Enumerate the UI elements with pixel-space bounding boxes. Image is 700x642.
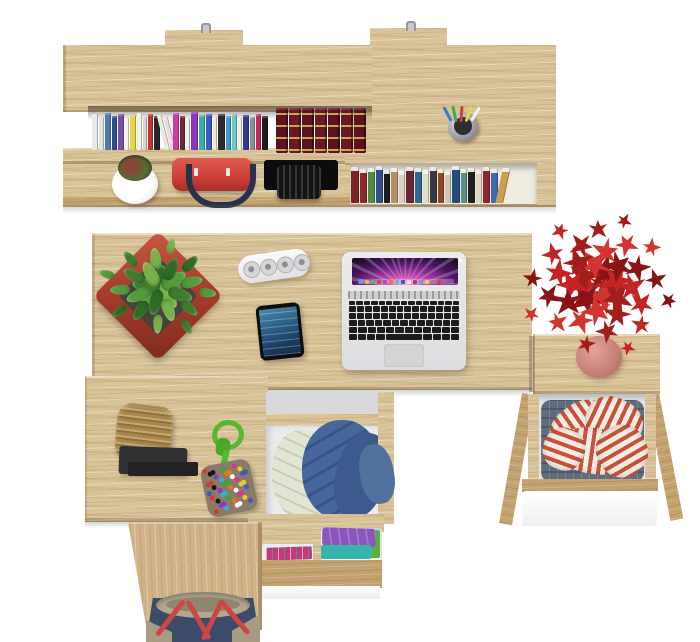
keyboard-key	[367, 334, 375, 340]
keyboard-key	[404, 306, 411, 312]
book-spine	[173, 113, 179, 150]
dark-tray-base	[128, 462, 198, 476]
shelf-drop-shadow	[63, 205, 556, 214]
drawer-divider	[313, 528, 321, 564]
pink-pencil-case	[266, 546, 312, 561]
classic-book-spine	[315, 108, 327, 153]
keyboard-key	[381, 306, 388, 312]
book-spine	[191, 112, 198, 150]
drawer-front-edge	[522, 479, 658, 492]
keyboard-key	[358, 334, 366, 340]
keyboard-key	[386, 301, 392, 305]
keyboard-key	[349, 301, 355, 305]
keyboard-key	[451, 334, 459, 340]
keyboard-key	[389, 306, 396, 312]
book-row-lower	[351, 165, 536, 203]
keyboard-key	[452, 306, 459, 312]
book-spine	[143, 117, 147, 150]
keyboard-row	[349, 334, 459, 340]
maple-leaf	[547, 312, 569, 334]
keyboard-key	[445, 301, 451, 305]
keyboard-key	[400, 320, 408, 326]
dock-icon	[413, 280, 417, 284]
book-spine	[92, 114, 98, 150]
laptop-keyboard	[349, 301, 459, 341]
keyboard-key	[444, 313, 451, 319]
camera-bag	[277, 165, 321, 199]
keyboard-key	[365, 313, 372, 319]
keyboard-key	[451, 327, 459, 333]
book-spine	[213, 117, 217, 150]
book-spine	[483, 167, 490, 203]
keyboard-row	[349, 320, 459, 326]
book-spine	[391, 168, 398, 203]
laptop-trackpad	[384, 344, 424, 367]
keyboard-key	[432, 327, 440, 333]
maple-leaf	[643, 267, 669, 293]
keyboard-key	[349, 327, 357, 333]
keyboard-key	[408, 301, 414, 305]
book-spine	[99, 117, 104, 150]
keyboard-key	[417, 320, 425, 326]
keyboard-key	[401, 301, 407, 305]
teal-cloth	[320, 545, 372, 559]
shelf-side-wall	[537, 163, 556, 205]
keyboard-key	[349, 320, 357, 326]
succulent-leaf	[110, 284, 130, 295]
pom-dot	[244, 484, 250, 490]
keyboard-key	[358, 327, 366, 333]
keyboard-key	[356, 301, 362, 305]
book-spine	[406, 167, 414, 203]
book-spine	[148, 114, 153, 150]
classic-book-spine	[302, 108, 314, 153]
keyboard-key	[386, 334, 423, 340]
keyboard-key	[414, 327, 422, 333]
dock-icon	[401, 280, 405, 284]
maple-leaf	[535, 282, 562, 309]
socket-icon	[259, 258, 278, 277]
keyboard-key	[453, 301, 459, 305]
book-spine	[430, 167, 437, 203]
keyboard-key	[436, 313, 443, 319]
keyboard-key	[397, 306, 404, 312]
keyboard-key	[381, 313, 388, 319]
book-spine	[399, 171, 405, 203]
leather-classics-books	[276, 106, 370, 153]
shelf-left-panel	[63, 45, 372, 112]
keyboard-key	[423, 327, 431, 333]
maple-leaf	[660, 292, 677, 309]
classic-book-spine	[276, 108, 288, 153]
keyboard-key	[444, 306, 451, 312]
keyboard-key	[366, 320, 374, 326]
dock-icon	[395, 280, 399, 284]
bottom-drawer-front-edge	[250, 560, 382, 588]
keyboard-key	[397, 313, 404, 319]
keyboard-key	[357, 313, 364, 319]
maple-leaf	[588, 220, 608, 240]
smartphone-screen	[259, 306, 302, 357]
pom-dot	[213, 509, 219, 515]
dock-icon	[383, 280, 387, 284]
keyboard-key	[404, 313, 411, 319]
book-spine	[206, 114, 212, 150]
desk-scene	[0, 0, 700, 642]
keyboard-key	[386, 327, 394, 333]
keyboard-key	[405, 327, 413, 333]
book-spine	[243, 115, 249, 150]
keyboard-row	[349, 306, 459, 312]
keyboard-key	[376, 334, 384, 340]
dock-icon	[407, 280, 411, 284]
keyboard-key	[433, 334, 441, 340]
keyboard-key	[373, 306, 380, 312]
maple-leaf	[550, 221, 570, 241]
pen	[459, 106, 463, 122]
keyboard-key	[373, 313, 380, 319]
keyboard-key	[377, 327, 385, 333]
keyboard-key	[375, 320, 383, 326]
book-spine	[423, 170, 429, 203]
keyboard-key	[438, 301, 444, 305]
cactus-plant	[118, 155, 152, 181]
classic-book-spine	[354, 108, 366, 153]
keyboard-key	[368, 327, 376, 333]
keyboard-key	[349, 334, 357, 340]
keyboard-key	[379, 301, 385, 305]
keyboard-key	[442, 327, 450, 333]
keyboard-key	[452, 313, 459, 319]
keyboard-key	[412, 306, 419, 312]
keyboard-key	[436, 306, 443, 312]
pom-dot	[237, 501, 243, 507]
keyboard-key	[428, 306, 435, 312]
laptop-hinge	[348, 291, 460, 299]
book-spine	[476, 170, 482, 203]
book-spine	[118, 114, 124, 150]
book-spine	[351, 167, 359, 203]
book-spine	[250, 117, 255, 150]
keyboard-key	[426, 320, 434, 326]
socket-icon	[242, 260, 261, 279]
book-spine	[262, 116, 268, 150]
dock-icon	[371, 280, 375, 284]
dock-icon	[437, 280, 441, 284]
keyboard-key	[392, 320, 400, 326]
keyboard-row	[349, 327, 459, 333]
keyboard-key	[442, 334, 450, 340]
socket-icon	[276, 255, 295, 274]
book-spine	[137, 113, 142, 150]
keyboard-key	[357, 306, 364, 312]
book-spine	[376, 166, 383, 203]
keyboard-key	[412, 313, 419, 319]
book-spine	[125, 118, 129, 150]
keyboard-key	[428, 313, 435, 319]
keyboard-key	[416, 301, 422, 305]
book-spine	[218, 114, 225, 150]
book-spine	[105, 113, 111, 150]
book-spine	[112, 116, 117, 150]
book-spine	[461, 169, 467, 203]
book-spine	[226, 116, 231, 150]
keyboard-key	[434, 320, 442, 326]
keyboard-key	[383, 320, 391, 326]
pompom-pouch	[199, 457, 259, 518]
maple-leaf	[639, 236, 663, 260]
wall-hook-icon	[406, 21, 416, 31]
keyboard-key	[393, 301, 399, 305]
book-spine	[415, 168, 422, 203]
keyboard-key	[389, 313, 396, 319]
classic-book-spine	[289, 108, 301, 153]
side-table-gap-shadow	[529, 336, 534, 392]
keyboard-key	[395, 327, 403, 333]
bottom-drawer-front	[252, 586, 380, 599]
dock-icon	[389, 280, 393, 284]
book-spine	[238, 118, 242, 150]
drawer-side-wall	[528, 394, 539, 484]
book-spine	[452, 166, 460, 203]
pom-dot	[224, 505, 230, 511]
dock-icon	[365, 280, 369, 284]
pom-dot	[248, 497, 254, 503]
keyboard-row	[349, 301, 459, 305]
dock-icon	[431, 280, 435, 284]
pom-dot	[243, 469, 249, 475]
keyboard-key	[365, 306, 372, 312]
book-spine	[368, 168, 375, 203]
dock-icon	[419, 280, 423, 284]
camera-indicator-icon	[459, 259, 462, 262]
keyboard-key	[409, 320, 417, 326]
keyboard-key	[349, 306, 356, 312]
keyboard-key	[443, 320, 451, 326]
maple-leaf	[615, 212, 633, 230]
maple-leaf	[539, 240, 567, 268]
keyboard-key	[358, 320, 366, 326]
keyboard-key	[430, 301, 436, 305]
wall-hook-icon	[201, 23, 211, 33]
dock-icon	[425, 280, 429, 284]
keyboard-key	[349, 313, 356, 319]
smartphone	[255, 302, 305, 361]
keyboard-key	[420, 313, 427, 319]
book-spine	[468, 168, 475, 203]
book-spine	[360, 169, 367, 203]
dock-icon	[377, 280, 381, 284]
book-spine	[232, 114, 237, 150]
book-spine	[384, 170, 390, 203]
keyboard-key	[451, 320, 459, 326]
book-spine	[438, 169, 444, 203]
right-drawer-front	[519, 491, 661, 526]
classic-book-spine	[328, 108, 340, 153]
book-spine	[186, 118, 190, 150]
drawer-side-wall	[645, 394, 656, 484]
laptop-dock	[358, 279, 454, 284]
dock-icon	[359, 280, 363, 284]
book-row-upper	[92, 111, 276, 150]
book-spine	[130, 115, 136, 150]
classic-book-spine	[341, 108, 353, 153]
book-spine	[180, 116, 185, 150]
maple-leaf	[630, 292, 654, 316]
keyboard-key	[423, 334, 431, 340]
keyboard-row	[349, 313, 459, 319]
keyboard-key	[371, 301, 377, 305]
pens	[440, 100, 484, 136]
book-spine	[199, 115, 205, 150]
keyboard-key	[364, 301, 370, 305]
keyboard-key	[420, 306, 427, 312]
book-spine	[256, 114, 261, 150]
book-spine	[445, 171, 451, 203]
keyboard-key	[423, 301, 429, 305]
